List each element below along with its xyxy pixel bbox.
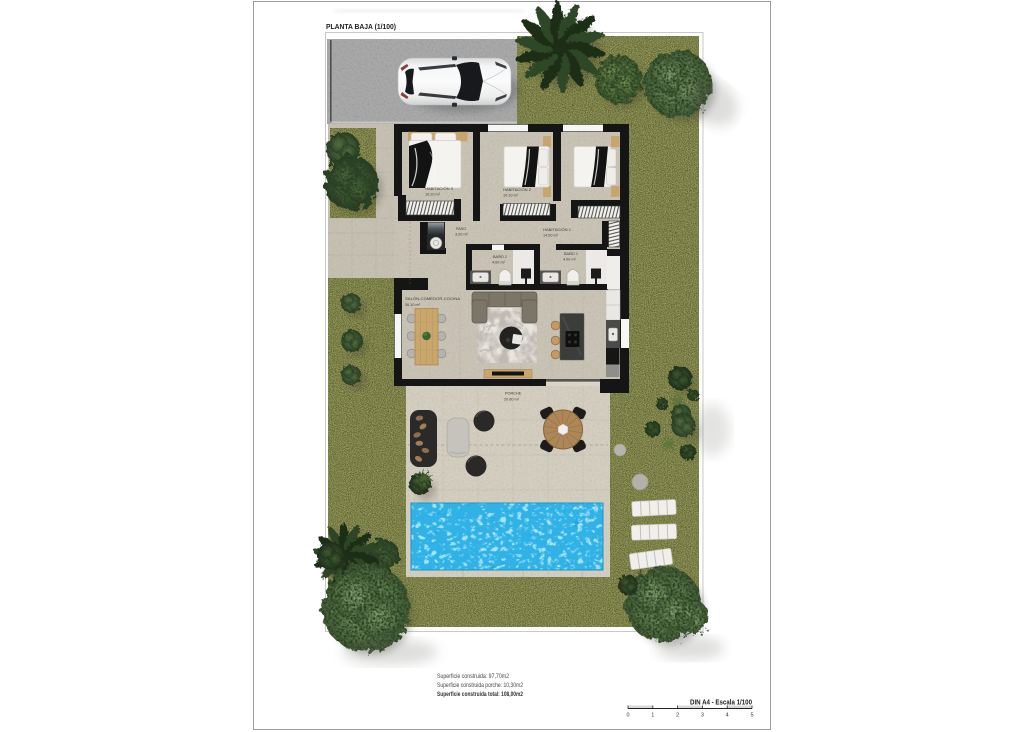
svg-text:PLANTA BAJA (1/100): PLANTA BAJA (1/100) [326,22,396,31]
svg-text:3: 3 [701,713,704,719]
svg-text:SALÓN-COMEDOR-COCINA: SALÓN-COMEDOR-COCINA [405,296,461,301]
svg-text:1: 1 [651,713,654,719]
svg-text:Superficie construida: 97,70m2: Superficie construida: 97,70m2 [437,673,510,680]
svg-text:10.20 m²: 10.20 m² [425,193,441,197]
svg-text:HABITACIÓN 2: HABITACIÓN 2 [503,187,532,192]
svg-text:36.10 m²: 36.10 m² [405,303,421,307]
svg-text:4.00 m²: 4.00 m² [492,261,506,265]
svg-text:HABITACIÓN 1: HABITACIÓN 1 [543,227,572,232]
svg-text:5: 5 [750,713,753,719]
svg-text:BAÑO 2: BAÑO 2 [493,254,507,259]
svg-text:4: 4 [726,713,729,719]
svg-text:4.00 m²: 4.00 m² [563,258,577,262]
svg-text:Superficie construida total: 1: Superficie construida total: 108,00m2 [437,691,523,698]
svg-text:Superficie construida porche:: Superficie construida porche: 10,30m2 [437,682,523,689]
svg-text:10.10 m²: 10.10 m² [503,194,519,198]
svg-text:DIN A4 - Escala 1/100: DIN A4 - Escala 1/100 [690,700,752,707]
svg-text:2: 2 [676,713,679,719]
svg-text:0: 0 [626,713,629,719]
svg-text:20.60 m²: 20.60 m² [504,398,520,402]
svg-text:PASO: PASO [456,227,466,231]
svg-text:14.50 m²: 14.50 m² [543,234,559,238]
svg-text:3.20 m²: 3.20 m² [455,233,469,237]
svg-text:BAÑO 1: BAÑO 1 [564,251,578,256]
svg-text:PORCHE: PORCHE [505,392,522,396]
svg-text:HABITACIÓN 3: HABITACIÓN 3 [425,186,454,191]
